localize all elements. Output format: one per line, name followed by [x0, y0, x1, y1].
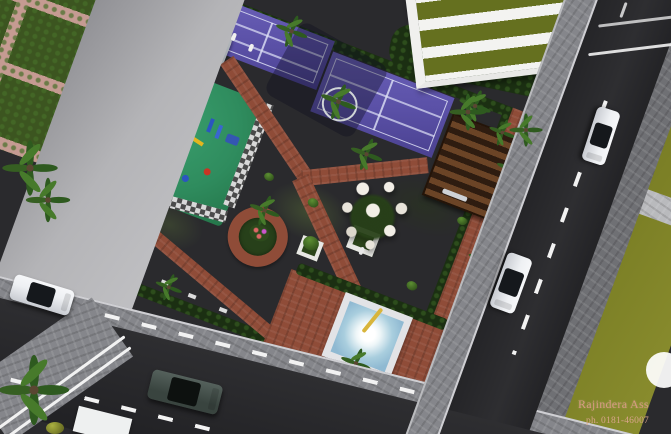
- aerial-park-render: Rajindera Ass ph. 0181-46007: [0, 0, 671, 434]
- watermark-name: Rajindera Ass: [578, 397, 671, 412]
- palm-tree-icon: [0, 352, 72, 428]
- play-springer-red: [203, 167, 212, 176]
- palm-tree-icon: [448, 92, 488, 132]
- play-mat-blue: [225, 133, 240, 146]
- palm-tree-icon: [24, 176, 72, 224]
- palm-tree-icon: [508, 112, 544, 148]
- play-post-blue-1: [206, 118, 215, 133]
- watermark-phone: ph. 0181-46007: [586, 416, 671, 426]
- play-springer-blue: [181, 174, 190, 183]
- play-post-blue-2: [214, 125, 223, 140]
